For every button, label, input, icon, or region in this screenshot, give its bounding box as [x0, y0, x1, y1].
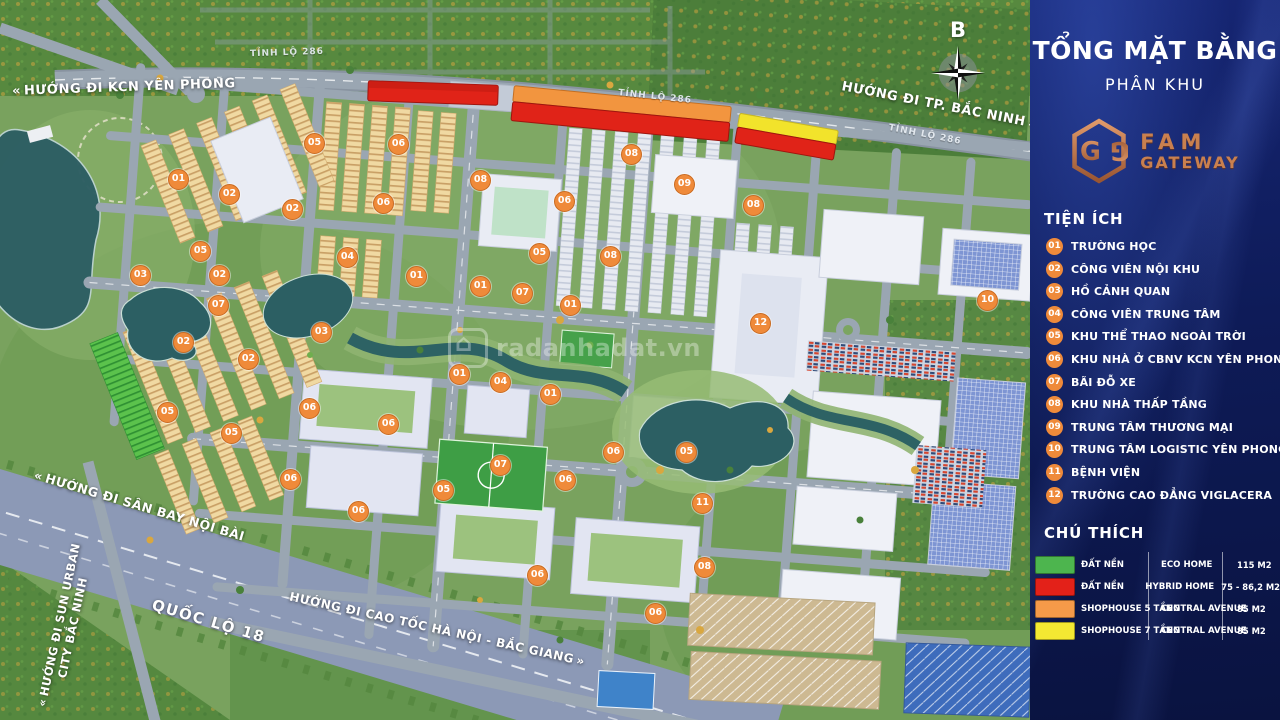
map-badge-07: 07	[208, 295, 229, 316]
watermark-text: radanhadat.vn	[496, 334, 701, 362]
map-badge-06: 06	[527, 565, 548, 586]
panel-title: TỔNG MẶT BẰNG	[1030, 36, 1280, 65]
svg-text:G: G	[1080, 136, 1101, 166]
amenity-label: CÔNG VIÊN TRUNG TÂM	[1071, 308, 1221, 321]
amenity-item: 11BỆNH VIỆN	[1046, 464, 1280, 481]
map-badge-05: 05	[529, 243, 550, 264]
map-badge-05: 05	[433, 480, 454, 501]
amenity-number-badge: 10	[1046, 441, 1063, 458]
legend-row: SHOPHOUSE 5 TẦNGCENTRAL AVENUE85 M2	[1035, 598, 1280, 620]
map-badge-01: 01	[560, 295, 581, 316]
map-badge-11: 11	[692, 493, 713, 514]
amenity-number-badge: 11	[1046, 464, 1063, 481]
amenity-label: TRUNG TÂM LOGISTIC YÊN PHONG	[1071, 443, 1280, 456]
fam-gateway-hexagon-icon: G G	[1070, 118, 1128, 184]
map-badge-06: 06	[373, 193, 394, 214]
amenity-number-badge: 06	[1046, 351, 1063, 368]
svg-text:G: G	[1110, 136, 1128, 166]
map-badge-02: 02	[209, 265, 230, 286]
legend-type-label: SHOPHOUSE 5 TẦNG	[1081, 604, 1151, 614]
map-badge-06: 06	[388, 134, 409, 155]
map-badge-05: 05	[157, 402, 178, 423]
map-badge-02: 02	[282, 199, 303, 220]
brand-name-line1: FAM	[1140, 130, 1239, 154]
amenity-item: 04CÔNG VIÊN TRUNG TÂM	[1046, 306, 1280, 323]
amenity-item: 06KHU NHÀ Ở CBNV KCN YÊN PHONG	[1046, 351, 1280, 368]
map-badge-06: 06	[554, 191, 575, 212]
amenity-item: 05KHU THỂ THAO NGOÀI TRỜI	[1046, 328, 1280, 345]
amenity-number-badge: 07	[1046, 374, 1063, 391]
brand-name-line2: GATEWAY	[1140, 154, 1239, 172]
legend-area-label: 85 M2	[1237, 626, 1266, 636]
map-badge-01: 01	[470, 276, 491, 297]
amenity-item: 03HỒ CẢNH QUAN	[1046, 283, 1280, 300]
amenity-number-badge: 04	[1046, 306, 1063, 323]
map-badge-10: 10	[977, 290, 998, 311]
legend-product-label: CENTRAL AVENUE	[1161, 604, 1227, 614]
map-badge-08: 08	[694, 557, 715, 578]
amenity-number-badge: 08	[1046, 396, 1063, 413]
map-badge-06: 06	[280, 469, 301, 490]
map-badge-01: 01	[449, 364, 470, 385]
amenity-number-badge: 02	[1046, 261, 1063, 278]
legend-divider	[1222, 552, 1223, 640]
amenity-label: TRƯỜNG HỌC	[1071, 240, 1156, 253]
compass: B	[928, 18, 988, 108]
legend-type-label: ĐẤT NỀN	[1081, 582, 1135, 592]
map-badge-07: 07	[512, 283, 533, 304]
amenities-list: 01TRƯỜNG HỌC02CÔNG VIÊN NỘI KHU03HỒ CẢNH…	[1030, 238, 1280, 504]
amenity-number-badge: 03	[1046, 283, 1063, 300]
map-badge-05: 05	[221, 423, 242, 444]
legend-type-label: ĐẤT NỀN	[1081, 560, 1151, 570]
map-badge-03: 03	[130, 265, 151, 286]
legend-color-swatch	[1035, 600, 1075, 618]
legend-type-label: SHOPHOUSE 7 TẦNG	[1081, 626, 1151, 636]
legend-color-swatch	[1035, 556, 1075, 574]
amenity-item: 09TRUNG TÂM THƯƠNG MẠI	[1046, 419, 1280, 436]
legend-area-label: 85 M2	[1237, 604, 1266, 614]
amenity-number-badge: 05	[1046, 328, 1063, 345]
map-badge-06: 06	[348, 501, 369, 522]
panel-subtitle: PHÂN KHU	[1030, 75, 1280, 94]
amenity-label: KHU NHÀ THẤP TẦNG	[1071, 398, 1207, 411]
legend-area-label: 115 M2	[1237, 560, 1272, 570]
masterplan-map: HƯỚNG ĐI KCN YÊN PHONG HƯỚNG ĐI TP. BẮC …	[0, 0, 1030, 720]
map-badge-05: 05	[304, 133, 325, 154]
amenity-number-badge: 12	[1046, 487, 1063, 504]
legend-row: ĐẤT NỀNHYBRID HOME75 - 86,2 M2	[1035, 576, 1280, 598]
amenity-label: KHU THỂ THAO NGOÀI TRỜI	[1071, 330, 1246, 343]
brand-logo: G G FAM GATEWAY	[1030, 108, 1280, 194]
watermark-house-icon	[448, 328, 488, 368]
amenity-item: 10TRUNG TÂM LOGISTIC YÊN PHONG	[1046, 441, 1280, 458]
map-badge-01: 01	[540, 384, 561, 405]
masterplan-screenshot: HƯỚNG ĐI KCN YÊN PHONG HƯỚNG ĐI TP. BẮC …	[0, 0, 1280, 720]
map-badge-12: 12	[750, 313, 771, 334]
map-badge-02: 02	[238, 349, 259, 370]
map-badge-08: 08	[743, 195, 764, 216]
legend-divider	[1148, 552, 1149, 640]
map-badge-07: 07	[490, 455, 511, 476]
amenity-number-badge: 01	[1046, 238, 1063, 255]
map-badge-03: 03	[311, 322, 332, 343]
legend-area-label: 75 - 86,2 M2	[1221, 582, 1280, 592]
legend-color-swatch	[1035, 578, 1075, 596]
legend-row: SHOPHOUSE 7 TẦNGCENTRAL AVENUE85 M2	[1035, 620, 1280, 642]
map-badge-06: 06	[299, 398, 320, 419]
compass-rose-icon	[929, 42, 987, 104]
amenity-item: 08KHU NHÀ THẤP TẦNG	[1046, 396, 1280, 413]
map-badge-01: 01	[406, 266, 427, 287]
map-badge-05: 05	[190, 241, 211, 262]
legend-color-swatch	[1035, 622, 1075, 640]
amenity-item: 07BÃI ĐỖ XE	[1046, 374, 1280, 391]
amenity-item: 02CÔNG VIÊN NỘI KHU	[1046, 261, 1280, 278]
amenity-item: 12TRƯỜNG CAO ĐẲNG VIGLACERA	[1046, 487, 1280, 504]
map-badge-08: 08	[600, 246, 621, 267]
legend-product-label: HYBRID HOME	[1145, 582, 1211, 592]
map-badge-08: 08	[470, 170, 491, 191]
map-badge-06: 06	[603, 442, 624, 463]
legend-table: ĐẤT NỀNECO HOME115 M2ĐẤT NỀNHYBRID HOME7…	[1030, 552, 1280, 642]
legend-heading: CHÚ THÍCH	[1044, 524, 1280, 542]
watermark: radanhadat.vn	[448, 328, 701, 368]
amenity-label: HỒ CẢNH QUAN	[1071, 285, 1170, 298]
amenity-label: TRUNG TÂM THƯƠNG MẠI	[1071, 421, 1233, 434]
amenity-label: KHU NHÀ Ở CBNV KCN YÊN PHONG	[1071, 353, 1280, 366]
amenity-label: BÃI ĐỖ XE	[1071, 376, 1136, 389]
legend-product-label: CENTRAL AVENUE	[1161, 626, 1227, 636]
map-badge-06: 06	[645, 603, 666, 624]
brand-logo-text: FAM GATEWAY	[1140, 130, 1239, 173]
map-badge-02: 02	[219, 184, 240, 205]
map-badge-04: 04	[337, 247, 358, 268]
amenity-label: BỆNH VIỆN	[1071, 466, 1140, 479]
amenity-label: TRƯỜNG CAO ĐẲNG VIGLACERA	[1071, 489, 1272, 502]
map-badge-09: 09	[674, 174, 695, 195]
amenities-heading: TIỆN ÍCH	[1044, 210, 1280, 228]
map-badge-01: 01	[168, 169, 189, 190]
amenity-item: 01TRƯỜNG HỌC	[1046, 238, 1280, 255]
map-badge-05: 05	[676, 442, 697, 463]
amenity-label: CÔNG VIÊN NỘI KHU	[1071, 263, 1200, 276]
arrow-left-icon	[12, 83, 25, 98]
map-badge-06: 06	[555, 470, 576, 491]
amenity-number-badge: 09	[1046, 419, 1063, 436]
legend-product-label: ECO HOME	[1161, 560, 1227, 570]
legend-row: ĐẤT NỀNECO HOME115 M2	[1035, 554, 1280, 576]
compass-north-label: B	[928, 18, 988, 42]
map-badge-02: 02	[173, 332, 194, 353]
map-badge-06: 06	[378, 414, 399, 435]
map-badge-04: 04	[490, 372, 511, 393]
map-badge-08: 08	[621, 144, 642, 165]
info-panel: TỔNG MẶT BẰNG PHÂN KHU G G FAM GATEWAY T…	[1030, 0, 1280, 720]
